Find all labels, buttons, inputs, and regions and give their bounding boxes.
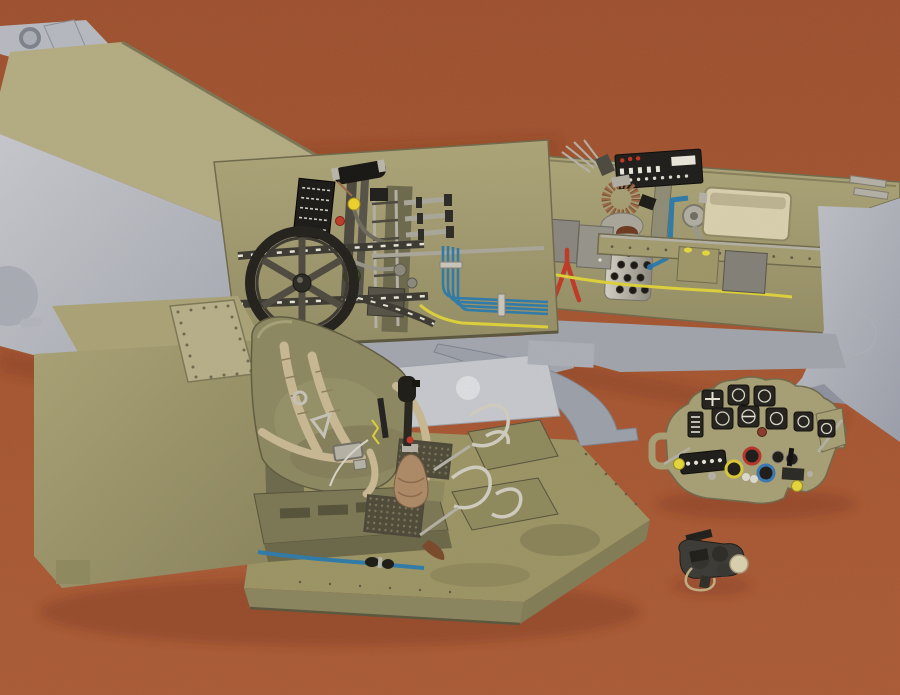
model-photo: [0, 0, 900, 695]
grain-overlay: [0, 0, 900, 695]
photo-stage: [0, 0, 900, 695]
